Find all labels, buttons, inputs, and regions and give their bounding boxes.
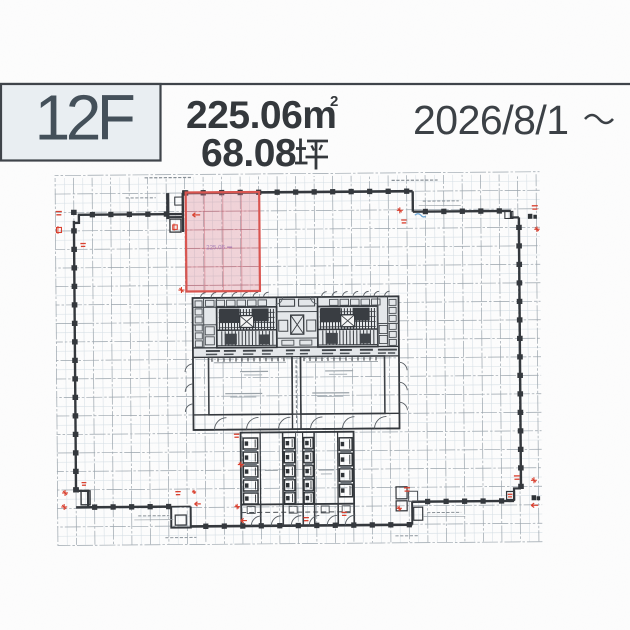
svg-text:2026/8/1: 2026/8/1: [413, 97, 569, 143]
svg-text:12F: 12F: [35, 82, 134, 154]
svg-text:225.06: 225.06: [206, 244, 226, 251]
svg-text:2: 2: [330, 93, 338, 110]
svg-text:225.06m: 225.06m: [186, 94, 336, 137]
svg-text:68.08: 68.08: [201, 132, 296, 175]
